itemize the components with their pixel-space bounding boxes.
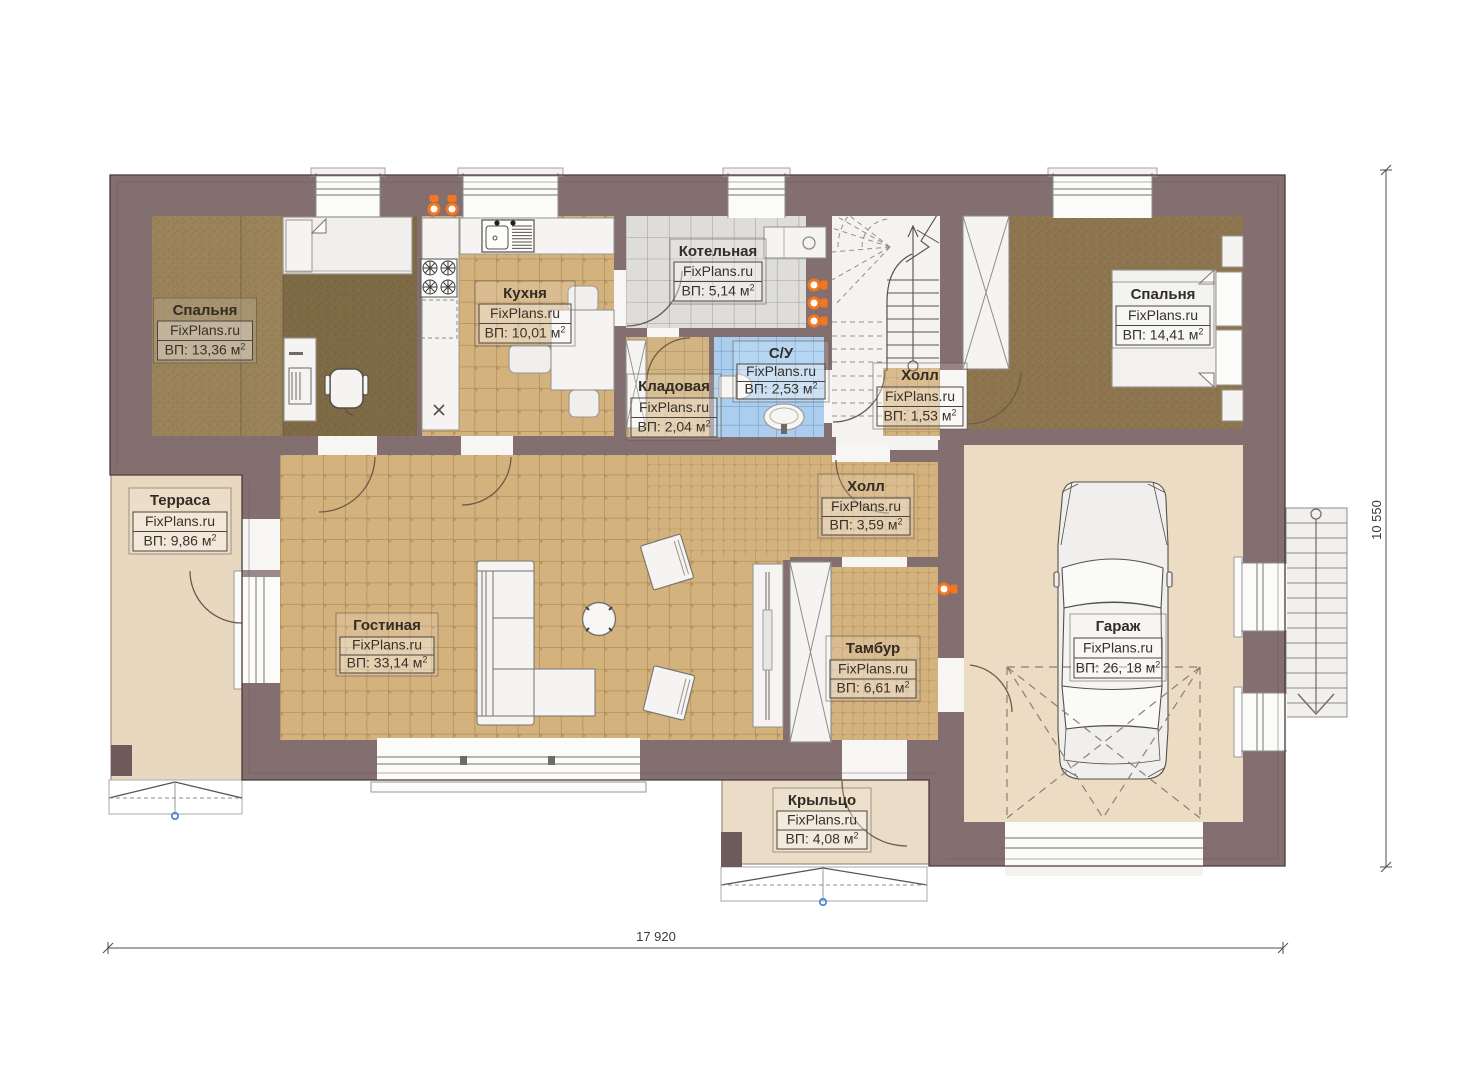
svg-text:ВП: 14,41 м2: ВП: 14,41 м2: [1123, 327, 1204, 343]
svg-text:FixPlans.ru: FixPlans.ru: [352, 637, 422, 653]
svg-text:Холл: Холл: [901, 367, 939, 384]
svg-text:ВП: 6,61 м2: ВП: 6,61 м2: [837, 680, 910, 696]
svg-text:FixPlans.ru: FixPlans.ru: [1128, 307, 1198, 323]
svg-text:Крыльцо: Крыльцо: [788, 792, 856, 809]
svg-text:ВП: 13,36 м2: ВП: 13,36 м2: [165, 342, 246, 358]
svg-text:ВП: 10,01 м2: ВП: 10,01 м2: [485, 325, 566, 341]
svg-text:С/У: С/У: [769, 345, 794, 362]
svg-text:FixPlans.ru: FixPlans.ru: [746, 363, 816, 379]
svg-text:ВП: 2,04 м2: ВП: 2,04 м2: [638, 419, 711, 435]
svg-text:FixPlans.ru: FixPlans.ru: [683, 263, 753, 279]
svg-text:Спальня: Спальня: [173, 302, 238, 319]
svg-text:ВП: 1,53 м2: ВП: 1,53 м2: [884, 408, 957, 424]
svg-text:Гостиная: Гостиная: [353, 617, 421, 634]
svg-text:ВП: 9,86 м2: ВП: 9,86 м2: [144, 533, 217, 549]
svg-text:Тамбур: Тамбур: [846, 640, 900, 657]
svg-text:ВП: 2,53 м2: ВП: 2,53 м2: [745, 381, 818, 397]
svg-text:FixPlans.ru: FixPlans.ru: [145, 513, 215, 529]
svg-text:10 550: 10 550: [1369, 500, 1384, 540]
svg-text:ВП: 33,14 м2: ВП: 33,14 м2: [347, 655, 428, 671]
svg-text:FixPlans.ru: FixPlans.ru: [885, 388, 955, 404]
svg-text:FixPlans.ru: FixPlans.ru: [170, 322, 240, 338]
svg-text:FixPlans.ru: FixPlans.ru: [1083, 640, 1153, 656]
svg-text:ВП: 3,59 м2: ВП: 3,59 м2: [830, 517, 903, 533]
svg-text:FixPlans.ru: FixPlans.ru: [838, 661, 908, 677]
svg-text:Котельная: Котельная: [679, 243, 758, 260]
svg-text:Терраса: Терраса: [150, 492, 211, 509]
svg-text:ВП: 4,08 м2: ВП: 4,08 м2: [786, 831, 859, 847]
svg-text:FixPlans.ru: FixPlans.ru: [490, 305, 560, 321]
svg-text:FixPlans.ru: FixPlans.ru: [787, 812, 857, 828]
svg-text:Гараж: Гараж: [1096, 618, 1141, 635]
svg-text:Спальня: Спальня: [1131, 286, 1196, 303]
svg-text:ВП: 26, 18 м2: ВП: 26, 18 м2: [1076, 660, 1161, 676]
svg-text:ВП: 5,14 м2: ВП: 5,14 м2: [682, 283, 755, 299]
svg-text:FixPlans.ru: FixPlans.ru: [831, 498, 901, 514]
svg-text:Кладовая: Кладовая: [638, 378, 710, 395]
svg-text:17 920: 17 920: [636, 929, 676, 944]
svg-text:FixPlans.ru: FixPlans.ru: [639, 399, 709, 415]
svg-text:Холл: Холл: [847, 478, 885, 495]
svg-text:Кухня: Кухня: [503, 285, 547, 302]
